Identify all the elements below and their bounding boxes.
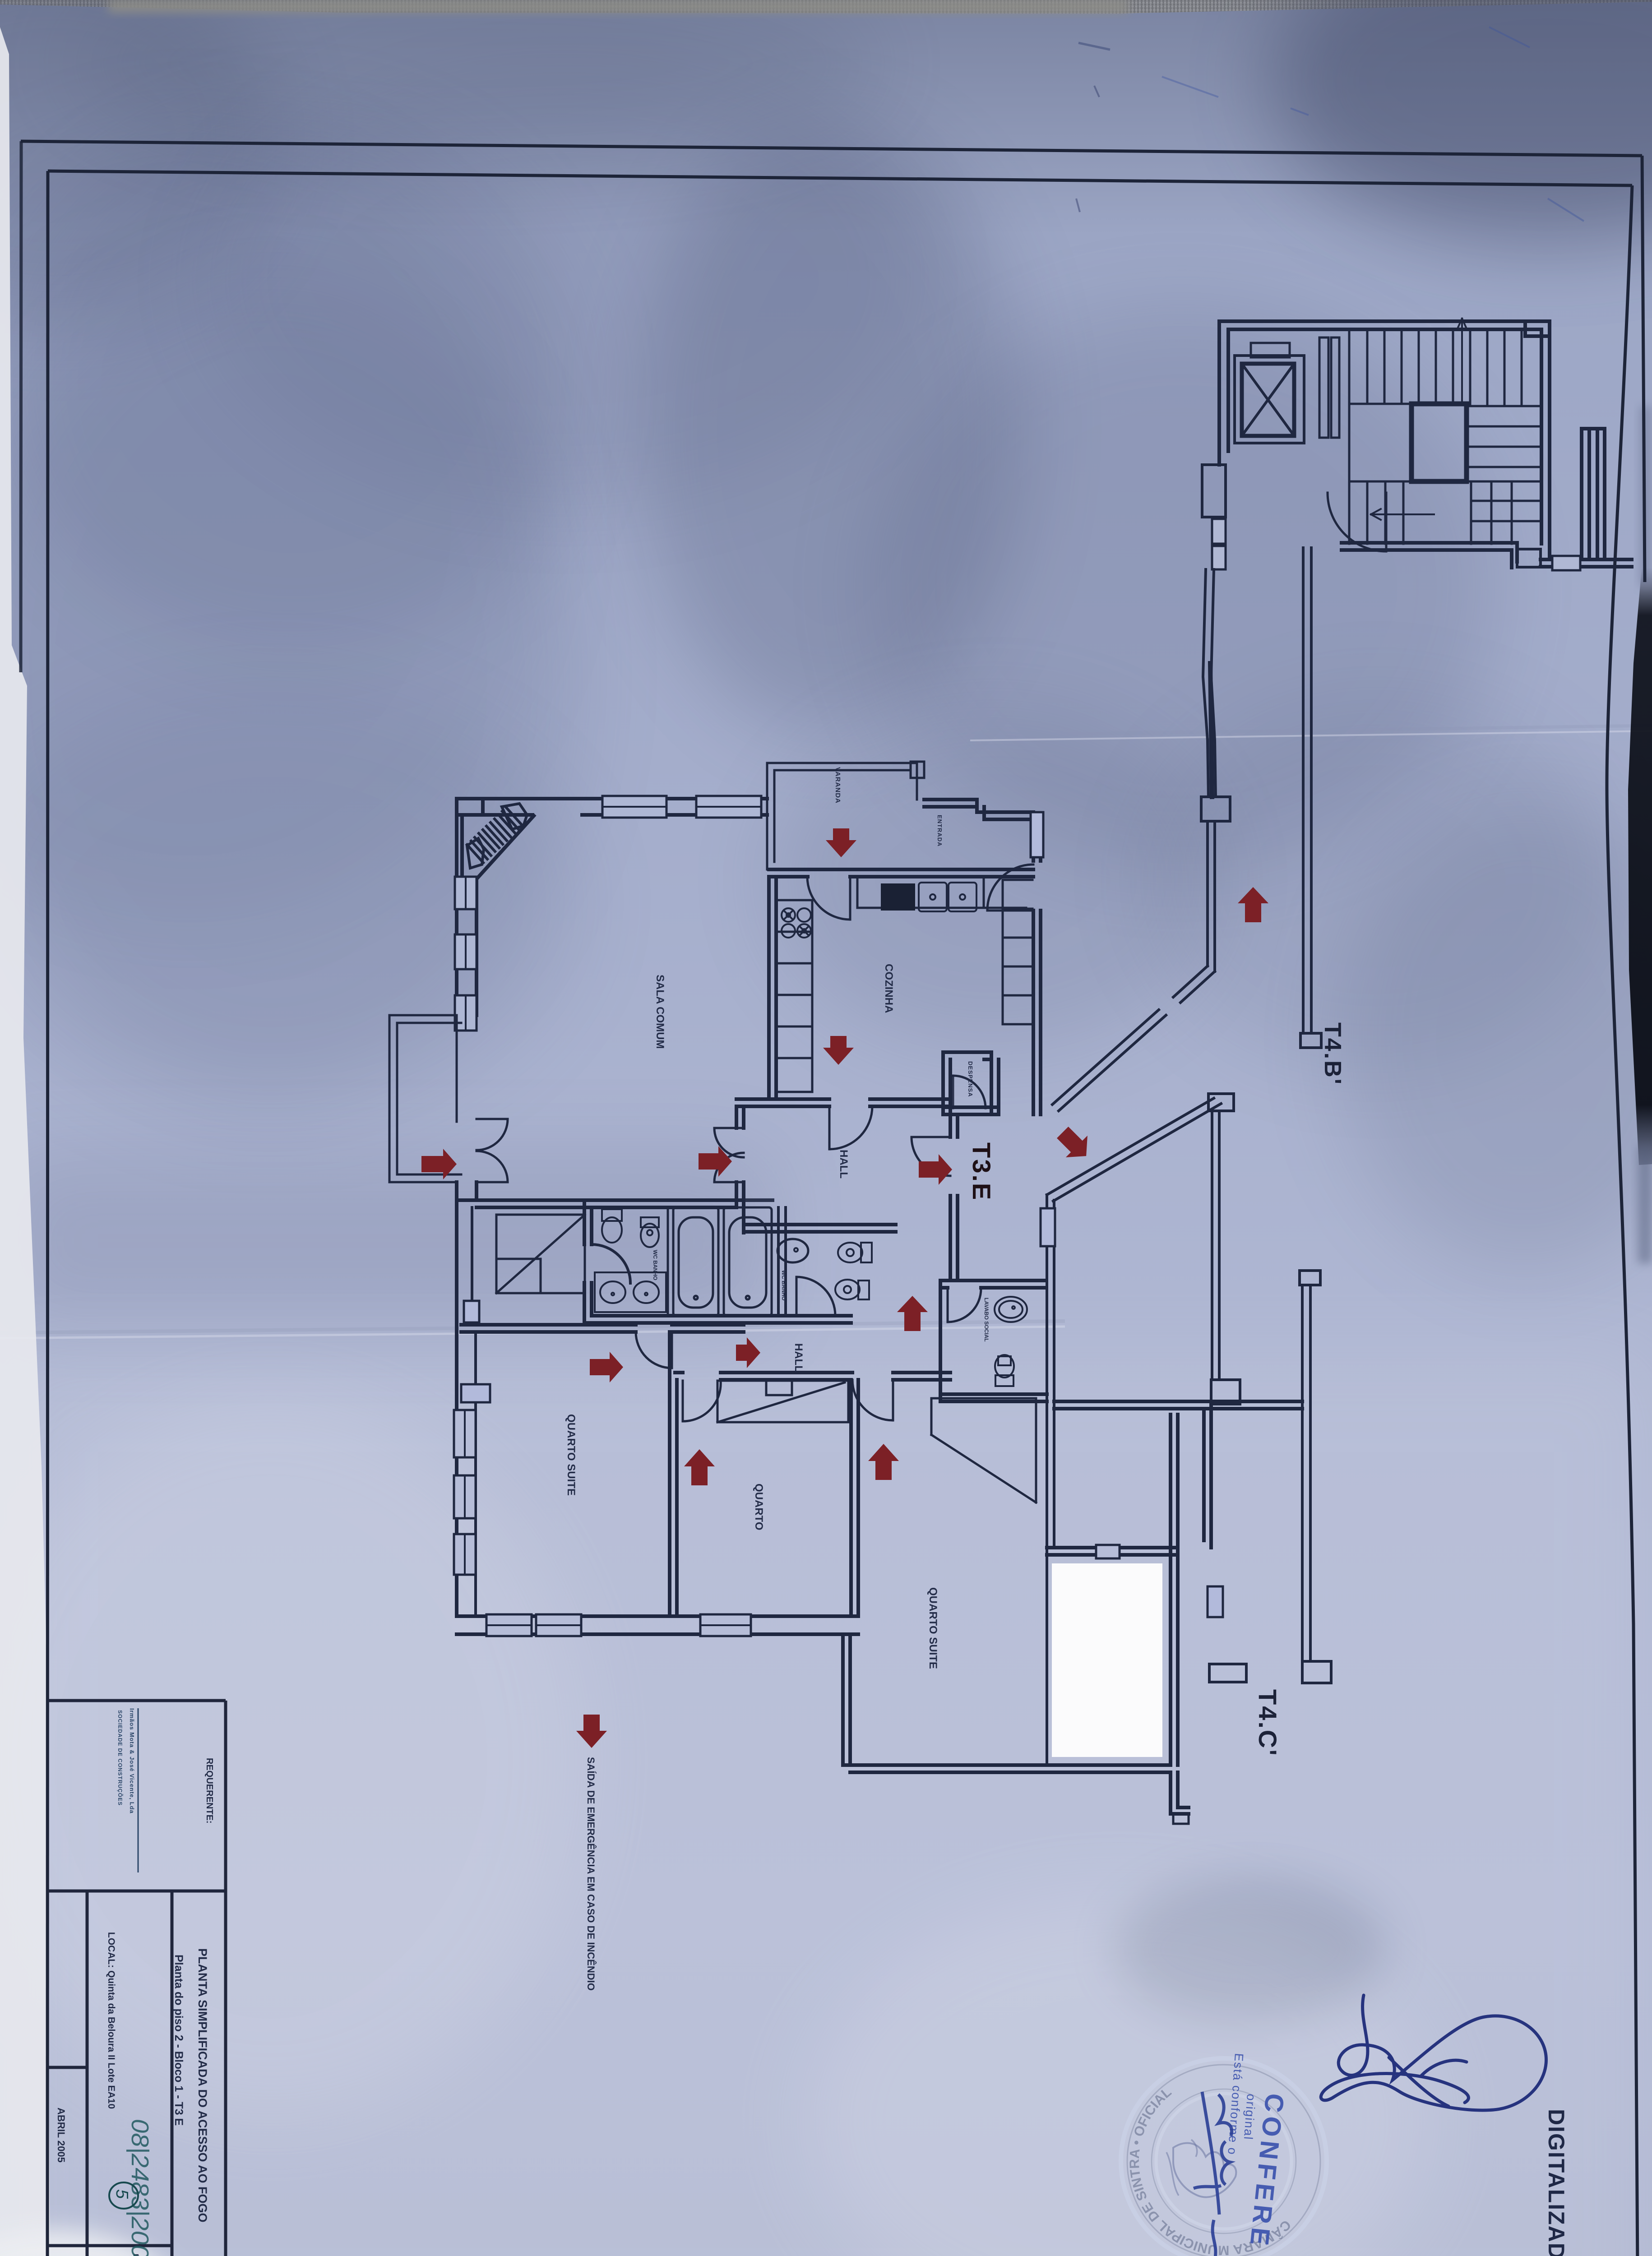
svg-text:ENTRADA: ENTRADA — [936, 815, 943, 847]
svg-text:QUARTO SUITE: QUARTO SUITE — [565, 1414, 577, 1496]
svg-text:COZINHA: COZINHA — [883, 964, 895, 1013]
svg-text:08|2483|2001|FTH: 08|2483|2001|FTH — [126, 2119, 153, 2256]
svg-text:DESPENSA: DESPENSA — [967, 1061, 974, 1097]
svg-text:WC BANHO: WC BANHO — [781, 1270, 787, 1300]
svg-text:Planta do piso 2 - Bloco 1 - T: Planta do piso 2 - Bloco 1 - T3 E — [172, 1955, 185, 2126]
svg-text:T4.B': T4.B' — [1319, 1022, 1346, 1086]
svg-text:T3.E: T3.E — [967, 1142, 996, 1201]
svg-text:SALA COMUM: SALA COMUM — [654, 975, 666, 1049]
svg-text:REQUERENTE:: REQUERENTE: — [204, 1758, 214, 1824]
svg-text:Irmãos Mota & José Vicente: Irmãos Mota & José Vicente, Lda — [129, 1708, 135, 1814]
svg-text:WC BANHO: WC BANHO — [652, 1250, 658, 1280]
svg-text:HALL: HALL — [792, 1343, 805, 1372]
svg-text:SOCIEDADE DE CONSTRUÇÕES: SOCIEDADE DE CONSTRUÇÕES — [117, 1710, 124, 1806]
svg-text:LOCAL: Quinta da Beloura II: LOCAL: Quinta da Beloura II Lote EA10 — [106, 1932, 116, 2109]
svg-text:ABRIL 2005: ABRIL 2005 — [56, 2108, 67, 2163]
svg-text:LAVABO SOCIAL: LAVABO SOCIAL — [983, 1298, 990, 1342]
svg-text:T4.C': T4.C' — [1254, 1689, 1282, 1757]
svg-text:VARANDA: VARANDA — [834, 767, 842, 804]
svg-text:QUARTO: QUARTO — [753, 1484, 765, 1530]
svg-text:PLANTA SIMPLIFICADA DO ACESSO: PLANTA SIMPLIFICADA DO ACESSO AO FOGO — [196, 1948, 209, 2223]
svg-text:DIGITALIZADO: DIGITALIZADO — [1544, 2109, 1569, 2256]
svg-text:HALL: HALL — [838, 1150, 850, 1179]
svg-text:SAÍDA DE EMERGÊNCIA EM CASO DE: SAÍDA DE EMERGÊNCIA EM CASO DE INCÊNDIO — [585, 1757, 597, 1991]
svg-text:5: 5 — [112, 2189, 131, 2199]
svg-text:QUARTO SUITE: QUARTO SUITE — [927, 1587, 939, 1669]
